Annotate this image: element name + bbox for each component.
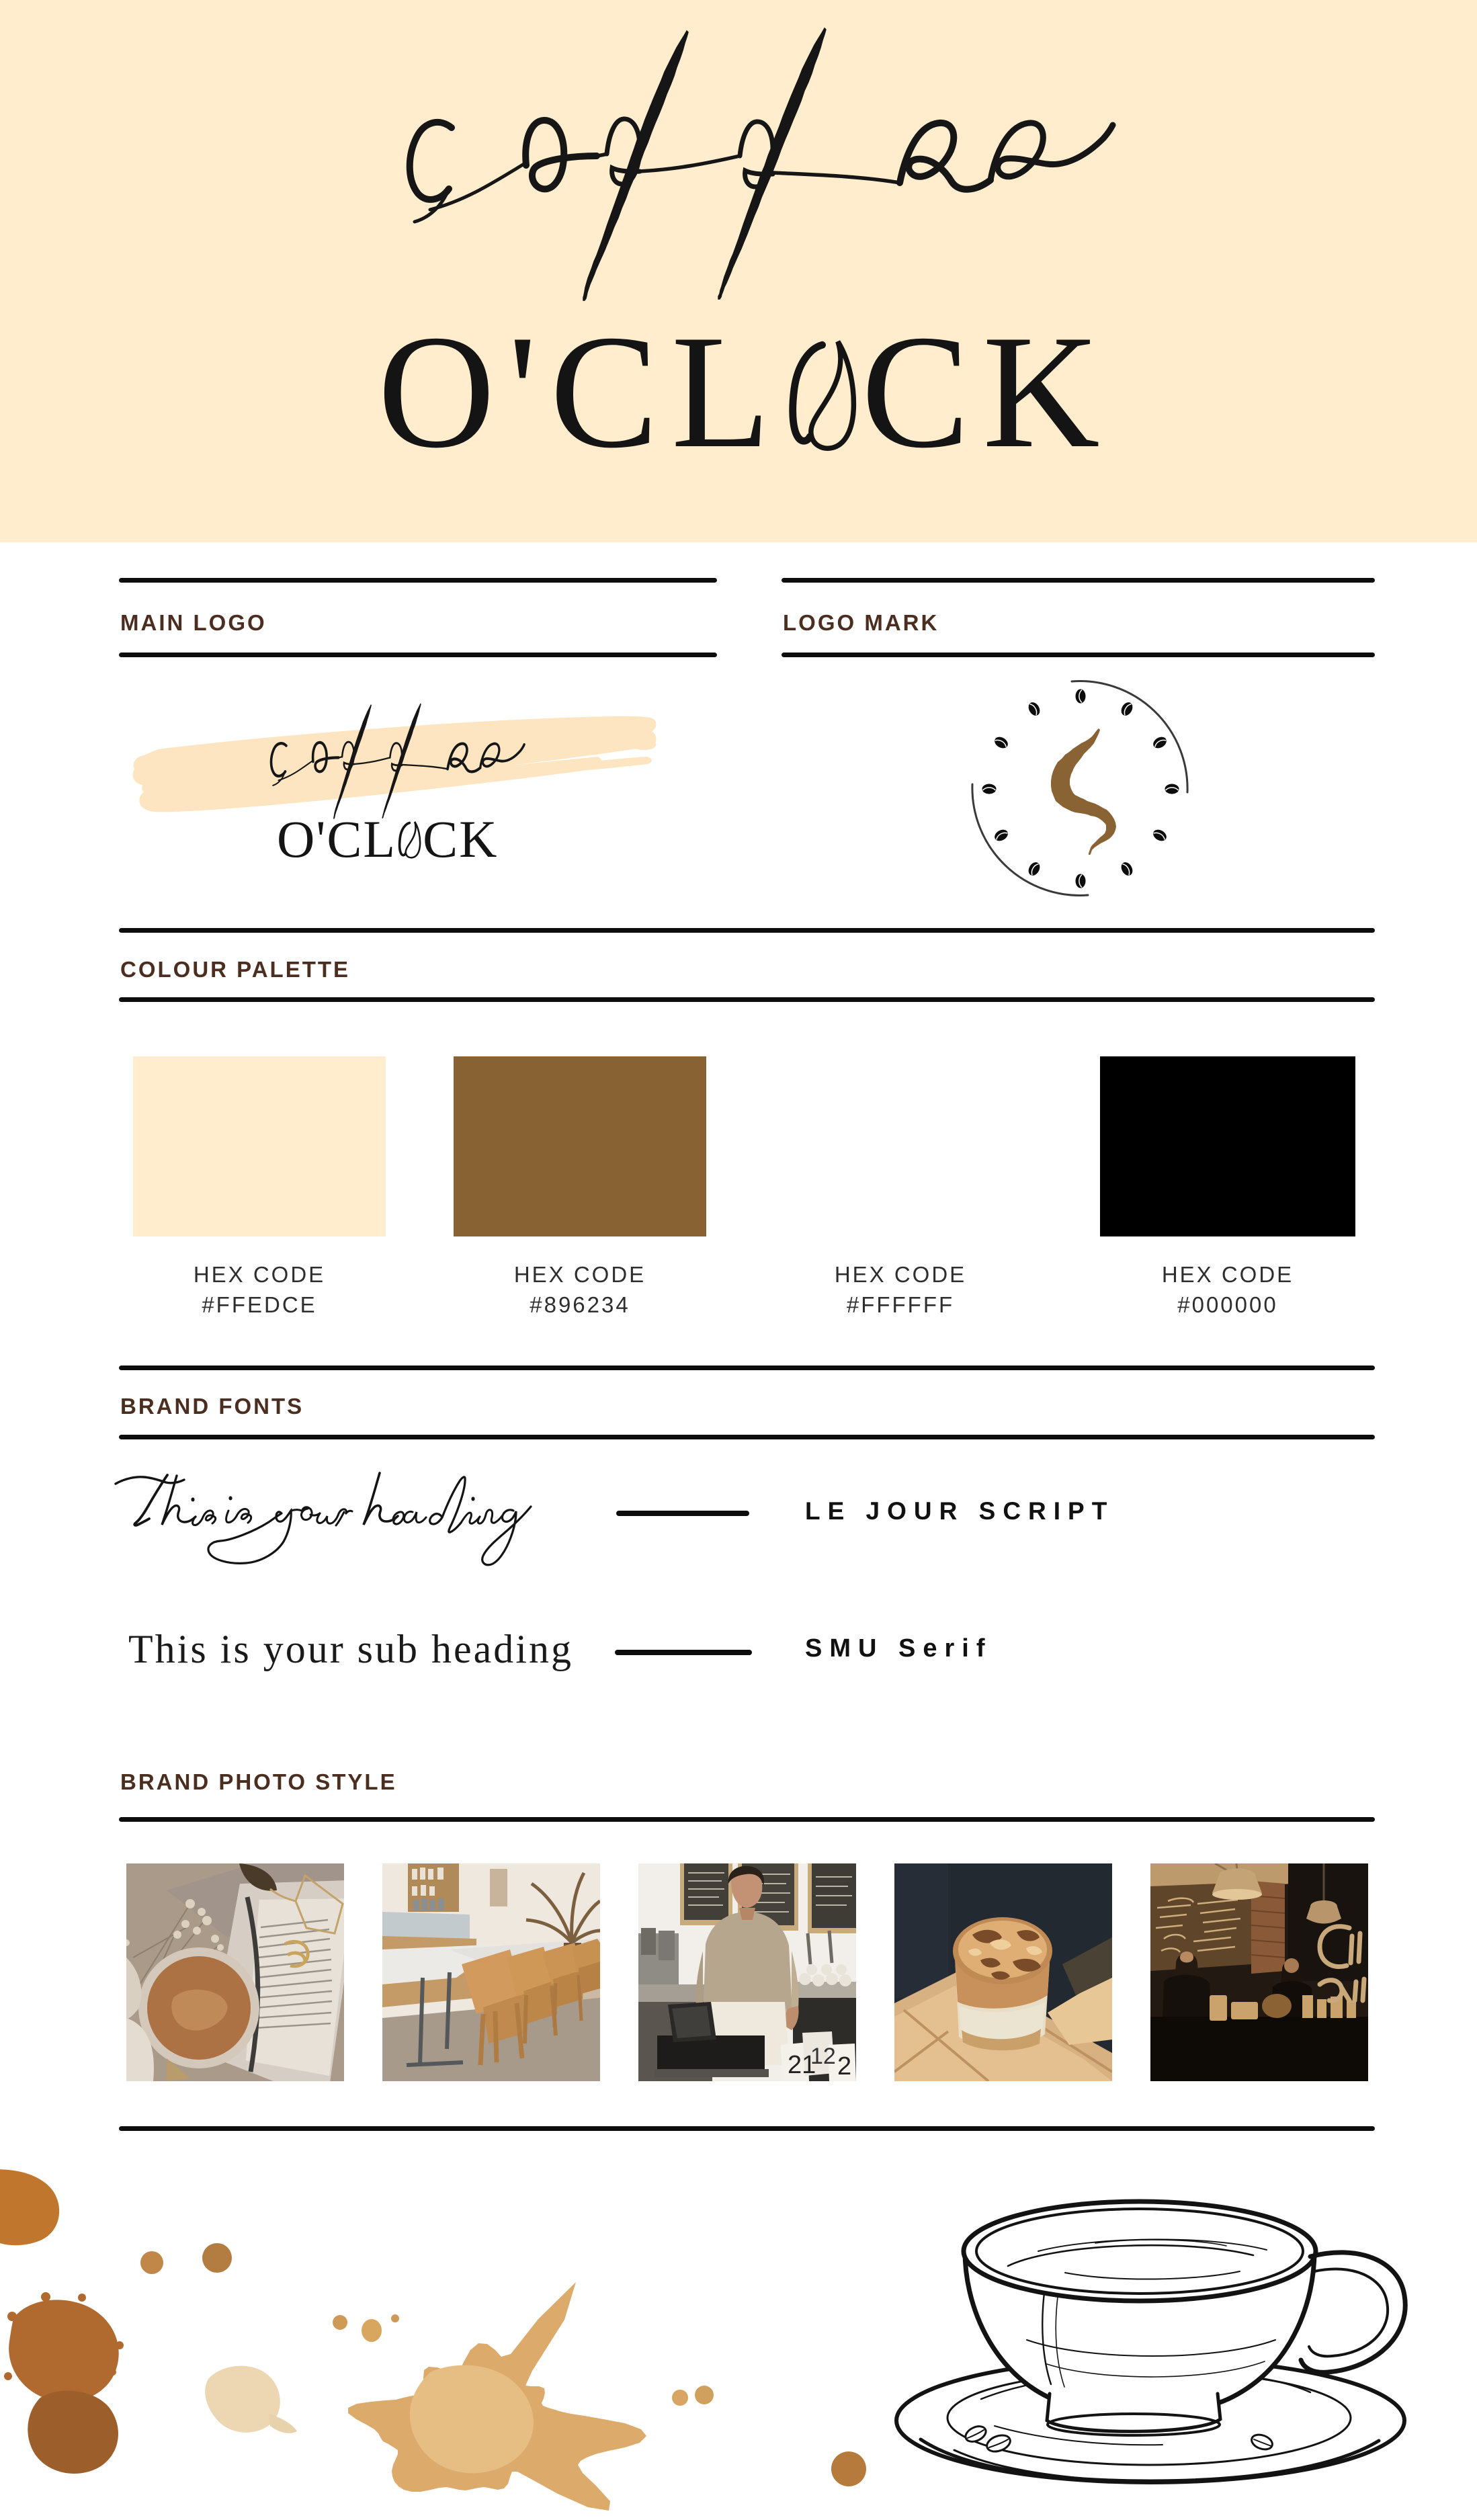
svg-text:12: 12 bbox=[810, 2044, 836, 2069]
svg-text:2: 2 bbox=[837, 2052, 851, 2081]
